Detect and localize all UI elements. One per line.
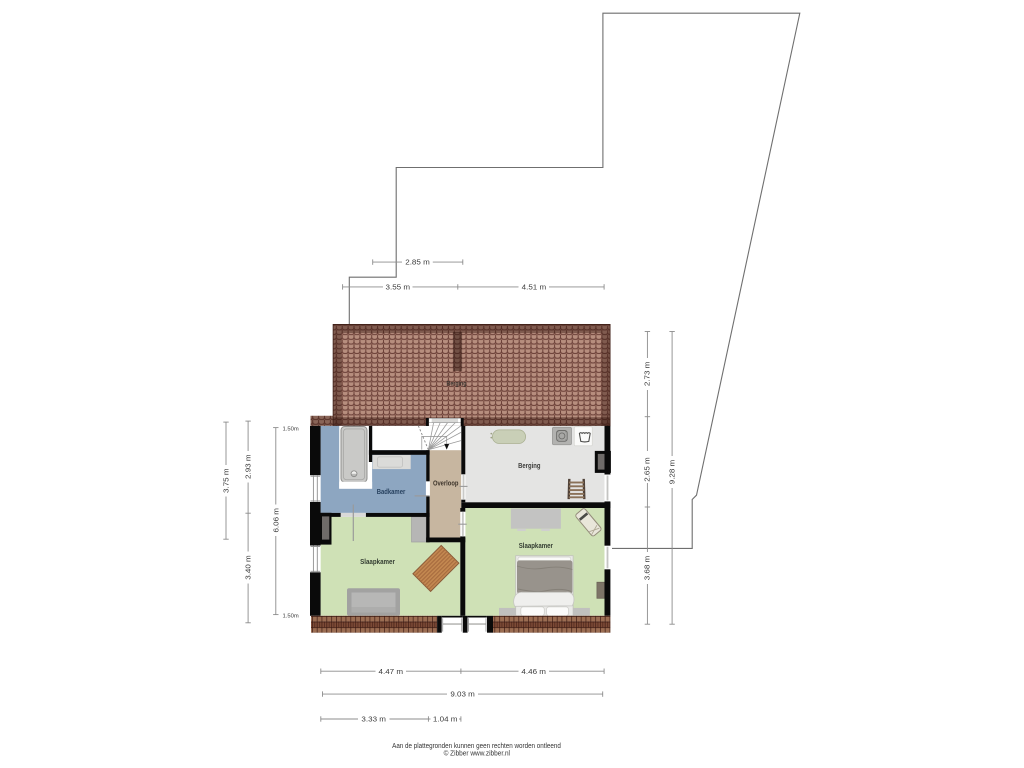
svg-text:2.65 m: 2.65 m: [643, 457, 652, 482]
svg-text:Berging: Berging: [447, 381, 467, 388]
svg-text:3.33 m: 3.33 m: [361, 715, 386, 724]
svg-text:3.75 m: 3.75 m: [222, 468, 231, 493]
svg-text:Berging: Berging: [518, 463, 540, 470]
svg-text:3.40 m: 3.40 m: [244, 555, 253, 580]
svg-text:1.50m: 1.50m: [283, 426, 299, 432]
svg-text:Slaapkamer: Slaapkamer: [360, 559, 395, 566]
svg-text:4.46 m: 4.46 m: [521, 667, 546, 676]
svg-text:3.68 m: 3.68 m: [643, 556, 652, 581]
svg-text:1.50m: 1.50m: [283, 613, 299, 619]
svg-text:9.28 m: 9.28 m: [667, 460, 676, 485]
svg-text:4.51 m: 4.51 m: [522, 282, 547, 291]
svg-text:2.73 m: 2.73 m: [643, 362, 652, 387]
svg-text:9.03 m: 9.03 m: [450, 690, 475, 699]
svg-text:Slaapkamer: Slaapkamer: [519, 543, 553, 550]
svg-text:© Zibber www.zibber.nl: © Zibber www.zibber.nl: [444, 750, 511, 758]
svg-text:6.06 m: 6.06 m: [271, 508, 280, 533]
svg-text:1.04 m: 1.04 m: [433, 715, 458, 724]
svg-text:Badkamer: Badkamer: [377, 489, 406, 496]
svg-text:2.85 m: 2.85 m: [405, 258, 430, 267]
svg-text:Overloop: Overloop: [433, 481, 459, 488]
svg-text:2.93 m: 2.93 m: [244, 454, 253, 479]
svg-text:4.47 m: 4.47 m: [379, 667, 404, 676]
svg-text:3.55 m: 3.55 m: [386, 282, 411, 291]
svg-text:Aan de plattegronden kunnen ge: Aan de plattegronden kunnen geen rechten…: [392, 743, 561, 750]
